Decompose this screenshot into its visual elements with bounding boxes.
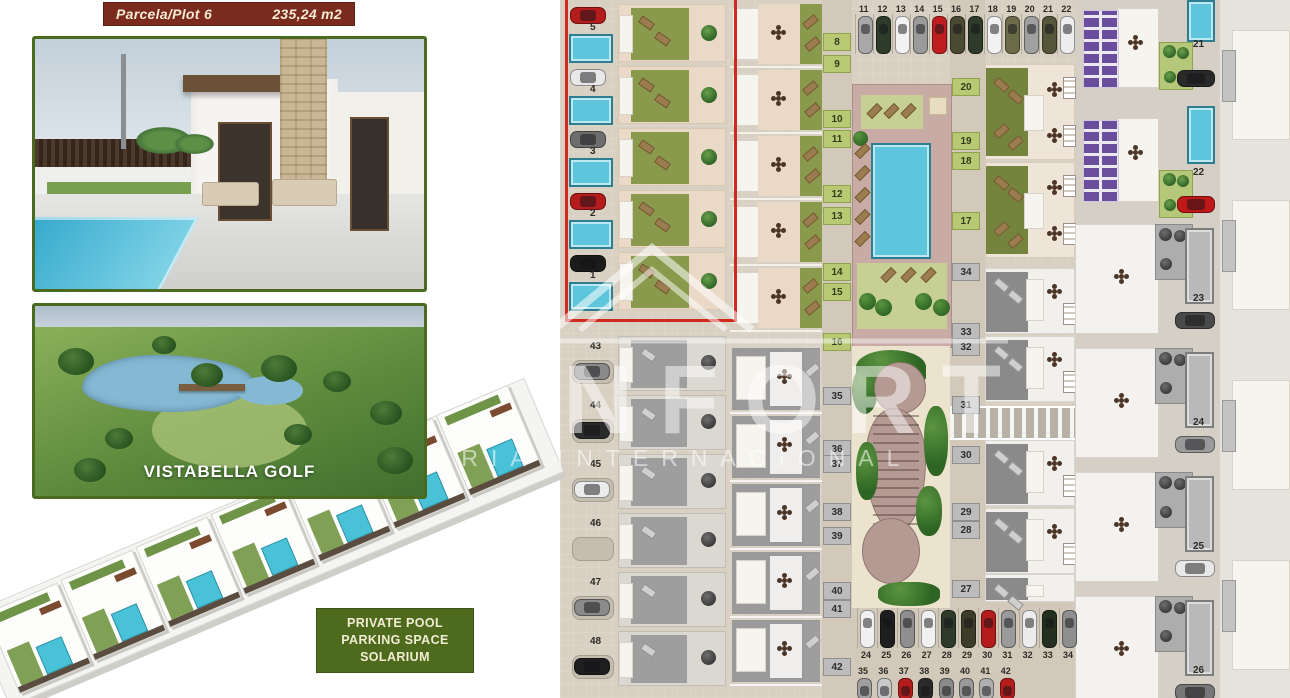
sun-lounger — [804, 102, 821, 118]
rowhouse-garden — [800, 4, 822, 64]
parking-stall-line — [929, 14, 930, 54]
car-icon — [857, 678, 872, 698]
table-chairs-icon — [1133, 40, 1138, 45]
unit-number-marker: 12 — [823, 185, 851, 203]
villa-building — [1075, 224, 1159, 334]
duplex-garden — [986, 512, 1028, 572]
parking-stall-line — [1039, 608, 1040, 648]
parking-stall-line — [1039, 14, 1040, 54]
table-chairs-icon — [776, 30, 781, 35]
sun-lounger — [804, 300, 821, 316]
garden-sofa — [272, 179, 336, 206]
plot-number: 33 — [1043, 650, 1053, 660]
tree-icon — [701, 473, 716, 488]
cutoff-pool — [1222, 580, 1236, 632]
car-icon — [950, 16, 965, 54]
garden-path — [874, 362, 926, 414]
table-chairs-icon — [782, 442, 787, 447]
unit-number-marker: 18 — [952, 152, 980, 170]
plot-number: 21 — [1043, 4, 1053, 14]
cutoff-pool — [1222, 400, 1236, 452]
plot-number: 45 — [590, 460, 601, 470]
rowhouse — [730, 200, 822, 266]
car-icon — [860, 610, 875, 648]
unit-number-marker: 28 — [952, 521, 980, 539]
rowhouse-garden — [804, 418, 820, 476]
unit-number-marker: 39 — [823, 527, 851, 545]
parking-stall-line — [965, 14, 966, 54]
tree-icon — [701, 591, 716, 606]
plot-number: 15 — [933, 4, 943, 14]
car-icon — [1001, 610, 1016, 648]
rowhouse — [730, 2, 822, 68]
garden-steps — [873, 415, 919, 525]
unit-garden — [631, 517, 687, 565]
glass-door — [350, 117, 389, 231]
rowhouse-terrace — [770, 352, 802, 406]
palm-tree — [175, 134, 214, 154]
table-chairs-icon — [1052, 231, 1057, 236]
site-plan: 5432143444546474889101112131415163536373… — [560, 0, 1290, 698]
plot-number: 12 — [877, 4, 887, 14]
table-chairs-icon — [782, 646, 787, 651]
plot-number: 25 — [1193, 542, 1204, 552]
car-icon — [900, 610, 915, 648]
unit-number-marker: 37 — [823, 455, 851, 473]
villa-pool — [1187, 0, 1215, 42]
table-chairs-icon — [1119, 274, 1124, 279]
duplex-roof — [1026, 585, 1044, 597]
car-icon — [932, 16, 947, 54]
plot-number: 30 — [982, 650, 992, 660]
car-icon — [1177, 196, 1215, 213]
car-icon — [1022, 610, 1037, 648]
rowhouse — [730, 482, 822, 550]
sun-lounger — [804, 566, 821, 582]
plot-number: 43 — [590, 342, 601, 352]
window-icon — [1063, 77, 1076, 99]
duplex-roof — [1026, 279, 1044, 321]
rowhouse — [730, 68, 822, 134]
villa-pool — [1187, 106, 1215, 164]
unit-number-marker: 38 — [823, 503, 851, 521]
unit-roof — [619, 524, 633, 560]
table-chairs-icon — [1052, 133, 1057, 138]
plot-number: 35 — [858, 666, 868, 676]
unit-number-marker: 31 — [952, 396, 980, 414]
unit-number-marker: 13 — [823, 207, 851, 225]
sun-lounger — [804, 234, 821, 250]
unit-number-marker: 20 — [952, 78, 980, 96]
tree-icon — [1159, 476, 1172, 489]
car-icon — [959, 678, 974, 698]
parking-stall-line — [1019, 608, 1020, 648]
duplex-building — [985, 268, 1075, 334]
unit-garden — [631, 399, 687, 447]
tree-icon — [933, 299, 950, 316]
rowhouse-garden — [800, 70, 822, 130]
table-chairs-icon — [1052, 289, 1057, 294]
plot-number: 42 — [1001, 666, 1011, 676]
car-icon — [1060, 16, 1075, 54]
parking-stall-line — [938, 608, 939, 648]
unit-number-marker: 14 — [823, 263, 851, 281]
tree-icon — [701, 650, 716, 665]
table-chairs-icon — [1119, 522, 1124, 527]
plot-number: 20 — [1025, 4, 1035, 14]
tree-icon — [261, 355, 297, 382]
rowhouse-garden — [800, 136, 822, 196]
parking-stall-line — [855, 14, 856, 54]
plot-number: 47 — [590, 578, 601, 588]
car-icon — [574, 422, 610, 439]
plot-number: 16 — [951, 4, 961, 14]
plot-number: 29 — [962, 650, 972, 660]
plot-number: 13 — [896, 4, 906, 14]
cutoff-building — [1232, 380, 1290, 490]
unit-garden — [631, 458, 687, 506]
rowhouse-roof — [736, 560, 766, 604]
table-chairs-icon — [1052, 529, 1057, 534]
rowhouse-garden — [800, 202, 822, 262]
villa-building — [1075, 472, 1159, 582]
parking-stall-line — [978, 608, 979, 648]
plot-number: 39 — [940, 666, 950, 676]
solar-panels — [1083, 10, 1119, 88]
tree-icon — [875, 299, 892, 316]
unit-building — [618, 454, 726, 509]
car-icon — [1175, 436, 1215, 453]
plot-number: 48 — [590, 637, 601, 647]
tree-icon — [370, 401, 402, 425]
car-icon — [941, 610, 956, 648]
unit-number-marker: 35 — [823, 387, 851, 405]
features-badge: PRIVATE POOL PARKING SPACE SOLARIUM — [316, 608, 474, 673]
tree-icon — [1160, 630, 1172, 642]
sun-lounger — [804, 498, 821, 514]
car-icon — [1175, 684, 1215, 698]
sun-lounger — [802, 146, 819, 162]
rowhouse-garden — [804, 486, 820, 544]
tree-icon — [1160, 258, 1172, 270]
street-lamp — [121, 54, 127, 149]
duplex-roof — [1026, 451, 1044, 493]
tree-icon — [859, 293, 876, 310]
tree-icon — [1160, 382, 1172, 394]
unit-number-marker: 29 — [952, 503, 980, 521]
tree-icon — [1164, 71, 1176, 83]
duplex-building — [985, 336, 1075, 402]
car-icon — [1005, 16, 1020, 54]
parking-stall-line — [984, 14, 985, 54]
car-icon — [1000, 678, 1015, 698]
car-icon — [1062, 610, 1077, 648]
duplex-building — [985, 508, 1075, 574]
duplex-roof — [1026, 519, 1044, 561]
car-icon — [921, 610, 936, 648]
table-chairs-icon — [782, 578, 787, 583]
rowhouse-garden — [800, 268, 822, 328]
car-icon — [939, 678, 954, 698]
unit-number-marker: 27 — [952, 580, 980, 598]
hedge — [924, 406, 948, 476]
tree-icon — [915, 293, 932, 310]
unit-roof — [619, 642, 633, 678]
car-icon — [1042, 610, 1057, 648]
plot-number: 25 — [881, 650, 891, 660]
rowhouse — [730, 618, 822, 686]
communal-pool — [871, 143, 931, 259]
rowhouse-garden — [804, 622, 820, 680]
sun-lounger — [804, 168, 821, 184]
villa-building — [1075, 596, 1159, 698]
rowhouse-roof — [736, 356, 766, 400]
rowhouse-roof — [736, 628, 766, 672]
parking-stall-line — [897, 608, 898, 648]
unit-number-marker: 8 — [823, 33, 851, 51]
car-icon — [1024, 16, 1039, 54]
car-icon — [1042, 16, 1057, 54]
tree-icon — [191, 363, 223, 387]
sun-lounger — [854, 231, 870, 247]
unit-number-marker: 34 — [952, 263, 980, 281]
rowhouse — [730, 414, 822, 482]
tree-icon — [701, 532, 716, 547]
plot-number: 17 — [969, 4, 979, 14]
hedge — [916, 486, 942, 536]
unit-building — [618, 631, 726, 686]
plot-number: 32 — [1023, 650, 1033, 660]
phase-edge-strip — [1220, 0, 1290, 698]
central-garden — [852, 346, 950, 608]
unit-roof — [619, 583, 633, 619]
car-icon — [574, 599, 610, 616]
plot-number: 41 — [980, 666, 990, 676]
unit-building — [618, 336, 726, 391]
car-icon — [574, 481, 610, 498]
plot-badge-area: 235,24 m2 — [272, 6, 342, 22]
plot-number: 27 — [922, 650, 932, 660]
duplex-building — [985, 162, 1075, 258]
table-chairs-icon — [1119, 646, 1124, 651]
feature-line: PRIVATE POOL — [347, 615, 443, 632]
car-icon — [574, 658, 610, 675]
table-chairs-icon — [776, 294, 781, 299]
plot-number: 28 — [942, 650, 952, 660]
unit-number-marker: 15 — [823, 283, 851, 301]
unit-number-marker: 41 — [823, 600, 851, 618]
plot-number: 40 — [960, 666, 970, 676]
plot-badge-label: Parcela/Plot 6 — [116, 6, 212, 22]
parking-stall-line — [892, 14, 893, 54]
rowhouse — [730, 266, 822, 332]
tree-icon — [284, 424, 312, 445]
unit-number-marker: 42 — [823, 658, 851, 676]
plot-number: 24 — [1193, 418, 1204, 428]
tree-icon — [701, 355, 716, 370]
plot-number: 44 — [590, 401, 601, 411]
solar-panels — [1083, 120, 1119, 202]
rowhouse-terrace — [770, 624, 802, 678]
villa-roof-overhang — [183, 75, 292, 91]
rowhouse-garden — [804, 350, 820, 408]
plot-number: 24 — [861, 650, 871, 660]
table-chairs-icon — [1119, 398, 1124, 403]
unit-number-marker: 11 — [823, 130, 851, 148]
table-chairs-icon — [1052, 461, 1057, 466]
rowhouse — [730, 134, 822, 200]
unit-building — [618, 572, 726, 627]
rowhouse-terrace — [770, 488, 802, 542]
rowhouse-terrace — [770, 556, 802, 610]
tree-icon — [1160, 506, 1172, 518]
sun-lounger — [804, 36, 821, 52]
plot-number: 14 — [914, 4, 924, 14]
unit-building — [618, 513, 726, 568]
plot-number: 46 — [590, 519, 601, 529]
parking-stall-line — [1021, 14, 1022, 54]
plot-number: 11 — [859, 4, 869, 14]
tree-icon — [701, 414, 716, 429]
parking-stall-line — [918, 608, 919, 648]
table-chairs-icon — [782, 374, 787, 379]
unit-building — [618, 395, 726, 450]
plot-number: 36 — [878, 666, 888, 676]
tree-icon — [1159, 228, 1172, 241]
car-icon — [987, 16, 1002, 54]
garden-sofa — [202, 182, 258, 207]
car-icon — [1175, 560, 1215, 577]
rowhouse-garden — [804, 554, 820, 612]
car-icon — [913, 16, 928, 54]
unit-number-marker: 32 — [952, 338, 980, 356]
golf-photo: VISTABELLA GOLF — [32, 303, 427, 499]
table-chairs-icon — [782, 510, 787, 515]
highlighted-plot-outline — [565, 0, 737, 322]
cutoff-pool — [1222, 50, 1236, 102]
villa-building — [1075, 348, 1159, 458]
tree-icon — [1177, 175, 1189, 187]
unit-number-marker: 17 — [952, 212, 980, 230]
unit-number-marker: 40 — [823, 582, 851, 600]
parking-pad — [572, 537, 614, 561]
unit-garden — [631, 340, 687, 388]
duplex-garden — [986, 272, 1028, 332]
unit-number-marker: 19 — [952, 132, 980, 150]
plot-number: 31 — [1002, 650, 1012, 660]
sun-lounger — [802, 212, 819, 228]
tree-icon — [1164, 199, 1176, 211]
car-icon — [918, 678, 933, 698]
duplex-roof — [1024, 193, 1044, 229]
sun-lounger — [802, 14, 819, 30]
table-chairs-icon — [1133, 150, 1138, 155]
parking-stall-line — [958, 608, 959, 648]
parking-stall-line — [947, 14, 948, 54]
tree-icon — [1163, 173, 1176, 186]
tree-icon — [105, 428, 133, 449]
car-icon — [895, 16, 910, 54]
feature-line: PARKING SPACE — [341, 632, 449, 649]
tree-icon — [58, 348, 94, 375]
duplex-garden — [986, 340, 1028, 400]
parking-stall-line — [1057, 14, 1058, 54]
sun-lounger — [804, 634, 821, 650]
car-icon — [877, 678, 892, 698]
sun-lounger — [854, 187, 870, 203]
rowhouse-terrace — [770, 420, 802, 474]
communal-pool-area — [852, 84, 952, 348]
duplex-roof — [1024, 95, 1044, 131]
unit-roof — [619, 406, 633, 442]
parking-stall-line — [998, 608, 999, 648]
paved-square — [929, 97, 947, 115]
tree-icon — [1177, 47, 1189, 59]
cutoff-building — [1232, 560, 1290, 670]
window-icon — [1063, 125, 1076, 147]
parking-stall-line — [1002, 14, 1003, 54]
unit-roof — [619, 465, 633, 501]
parking-stall-line — [873, 14, 874, 54]
rowhouse-roof — [736, 492, 766, 536]
car-icon — [898, 678, 913, 698]
sun-lounger — [804, 362, 821, 378]
plot-number: 23 — [1193, 294, 1204, 304]
car-icon — [1177, 70, 1215, 87]
parking-stall-line — [857, 608, 858, 648]
car-icon — [961, 610, 976, 648]
car-icon — [858, 16, 873, 54]
car-icon — [574, 363, 610, 380]
car-icon — [979, 678, 994, 698]
duplex-building — [985, 440, 1075, 506]
rowhouse — [730, 550, 822, 618]
table-chairs-icon — [1052, 357, 1057, 362]
parking-stall-line — [877, 608, 878, 648]
sun-lounger — [854, 209, 870, 225]
villa-photo — [32, 36, 427, 292]
plot-number: 34 — [1063, 650, 1073, 660]
car-icon — [880, 610, 895, 648]
parking-stall-line — [1059, 608, 1060, 648]
table-chairs-icon — [1052, 87, 1057, 92]
plot-number: 21 — [1193, 40, 1204, 50]
sun-lounger — [802, 278, 819, 294]
parking-stall-line — [910, 14, 911, 54]
plot-number: 37 — [899, 666, 909, 676]
table-chairs-icon — [1052, 185, 1057, 190]
plot-number: 38 — [919, 666, 929, 676]
duplex-roof — [1026, 347, 1044, 389]
duplex-building — [985, 64, 1075, 160]
rowhouse — [730, 346, 822, 414]
duplex-building — [985, 574, 1075, 602]
car-icon — [1175, 312, 1215, 329]
unit-roof — [619, 347, 633, 383]
golf-caption: VISTABELLA GOLF — [35, 462, 424, 482]
cutoff-building — [1232, 200, 1290, 310]
listing-graphic: Parcela/Plot 6 235,24 m2 VISTABELLA GOLF — [0, 0, 1290, 698]
sun-lounger — [804, 430, 821, 446]
villa-building — [1117, 8, 1159, 88]
table-chairs-icon — [776, 96, 781, 101]
duplex-garden — [986, 444, 1028, 504]
plot-number: 26 — [901, 650, 911, 660]
unit-number-marker: 16 — [823, 333, 851, 351]
tree-icon — [1163, 45, 1176, 58]
table-chairs-icon — [776, 162, 781, 167]
hedge — [878, 582, 940, 606]
